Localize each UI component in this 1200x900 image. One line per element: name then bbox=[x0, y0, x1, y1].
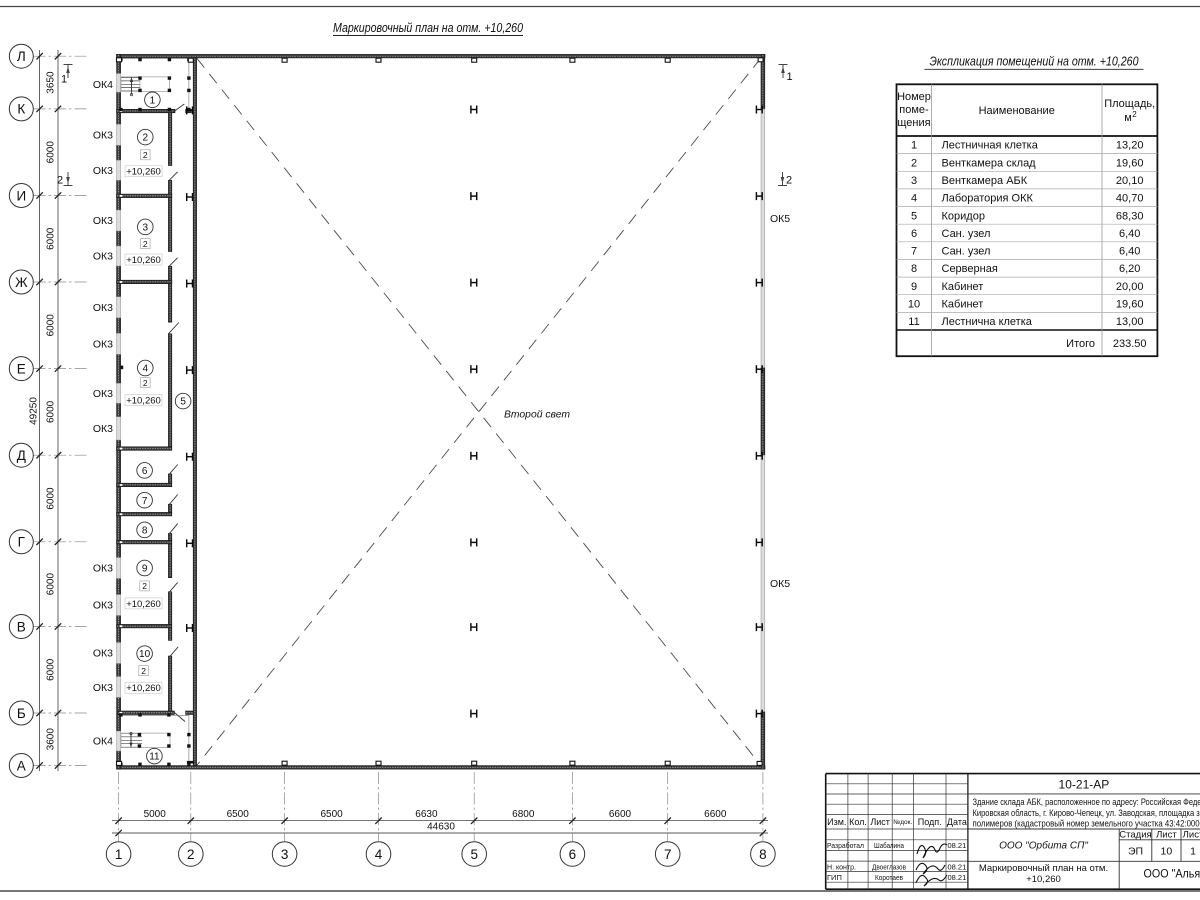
svg-text:2: 2 bbox=[187, 847, 195, 862]
svg-text:6800: 6800 bbox=[512, 809, 535, 820]
svg-text:4: 4 bbox=[375, 847, 383, 862]
svg-text:+10,260: +10,260 bbox=[126, 683, 161, 694]
svg-text:Б: Б bbox=[17, 706, 26, 721]
svg-text:+10,260: +10,260 bbox=[126, 395, 161, 406]
svg-text:2: 2 bbox=[143, 133, 149, 144]
svg-text:233.50: 233.50 bbox=[1113, 338, 1147, 350]
svg-text:08.21: 08.21 bbox=[948, 841, 967, 850]
svg-text:Дата: Дата bbox=[947, 817, 967, 827]
svg-text:10: 10 bbox=[139, 649, 151, 660]
svg-text:1: 1 bbox=[787, 71, 793, 83]
svg-text:Площадь,: Площадь, bbox=[1104, 98, 1155, 110]
svg-text:6,20: 6,20 bbox=[1119, 263, 1140, 275]
svg-text:1: 1 bbox=[911, 140, 917, 152]
svg-text:13,00: 13,00 bbox=[1116, 316, 1144, 328]
svg-text:ООО "Орбита СП": ООО "Орбита СП" bbox=[999, 840, 1088, 852]
svg-text:6000: 6000 bbox=[46, 314, 57, 337]
svg-text:Подп.: Подп. bbox=[918, 817, 942, 827]
svg-text:2: 2 bbox=[141, 666, 146, 676]
svg-text:ОК4: ОК4 bbox=[93, 79, 113, 91]
svg-text:Лист: Лист bbox=[1183, 830, 1200, 841]
svg-text:Стадия: Стадия bbox=[1119, 830, 1151, 841]
svg-text:08.21: 08.21 bbox=[948, 863, 967, 872]
svg-text:Лаборатория ОКК: Лаборатория ОКК bbox=[942, 193, 1034, 205]
svg-text:6000: 6000 bbox=[46, 487, 57, 510]
svg-text:3600: 3600 bbox=[46, 728, 57, 751]
svg-text:Здание склада АБК, расположенн: Здание склада АБК, расположенное по адре… bbox=[973, 797, 1200, 807]
svg-text:А: А bbox=[17, 758, 26, 773]
svg-text:4: 4 bbox=[911, 193, 917, 205]
svg-text:Маркировочный план на отм. +10: Маркировочный план на отм. +10,260 bbox=[333, 20, 524, 35]
svg-text:6000: 6000 bbox=[46, 141, 57, 164]
svg-text:В: В bbox=[17, 619, 26, 634]
svg-text:ООО "Альянс: ООО "Альянс bbox=[1144, 869, 1200, 881]
svg-text:ОК3: ОК3 bbox=[93, 563, 113, 575]
svg-text:+10,260: +10,260 bbox=[126, 255, 161, 266]
svg-text:10: 10 bbox=[908, 298, 920, 310]
svg-text:08.21: 08.21 bbox=[948, 873, 967, 882]
svg-text:ОК3: ОК3 bbox=[93, 165, 113, 177]
svg-text:2: 2 bbox=[143, 378, 148, 388]
svg-text:13,20: 13,20 bbox=[1116, 140, 1144, 152]
svg-text:поме-: поме- bbox=[899, 104, 929, 116]
svg-text:20,00: 20,00 bbox=[1116, 281, 1144, 293]
svg-text:Коридор: Коридор bbox=[942, 210, 985, 222]
svg-text:Лестничная клетка: Лестничная клетка bbox=[942, 140, 1039, 152]
svg-text:3: 3 bbox=[911, 175, 917, 187]
svg-text:Венткамера АБК: Венткамера АБК bbox=[942, 175, 1028, 187]
svg-text:ОК3: ОК3 bbox=[93, 682, 113, 694]
svg-text:К: К bbox=[17, 102, 25, 117]
svg-text:ОК3: ОК3 bbox=[93, 423, 113, 435]
svg-text:Серверная: Серверная bbox=[942, 263, 998, 275]
svg-text:3: 3 bbox=[143, 223, 149, 234]
svg-text:ГИП: ГИП bbox=[827, 873, 842, 882]
svg-text:+10,260: +10,260 bbox=[126, 599, 161, 610]
svg-text:Итого: Итого bbox=[1066, 338, 1095, 350]
svg-text:Маркировочный план на отм.: Маркировочный план на отм. bbox=[979, 863, 1108, 874]
svg-text:№док.: №док. bbox=[893, 819, 912, 826]
svg-text:ОК3: ОК3 bbox=[93, 388, 113, 400]
svg-text:ОК3: ОК3 bbox=[93, 648, 113, 660]
svg-text:11: 11 bbox=[908, 316, 919, 328]
svg-text:6000: 6000 bbox=[46, 573, 57, 596]
svg-text:Лист: Лист bbox=[1156, 830, 1177, 841]
svg-text:полимеров (кадастровый номер з: полимеров (кадастровый номер земельного … bbox=[973, 819, 1200, 829]
svg-text:ОК3: ОК3 bbox=[93, 302, 113, 314]
svg-text:Номер: Номер bbox=[897, 91, 931, 103]
svg-text:5: 5 bbox=[180, 397, 186, 408]
svg-text:6: 6 bbox=[911, 228, 917, 240]
svg-text:Д: Д bbox=[17, 448, 26, 463]
svg-text:Е: Е bbox=[17, 361, 26, 376]
svg-text:6: 6 bbox=[142, 466, 148, 477]
svg-text:ЭП: ЭП bbox=[1128, 846, 1143, 858]
svg-text:Лист: Лист bbox=[870, 817, 890, 827]
svg-text:19,60: 19,60 bbox=[1116, 298, 1144, 310]
svg-text:Второй свет: Второй свет bbox=[504, 409, 570, 421]
svg-text:4: 4 bbox=[143, 364, 149, 375]
svg-text:6,40: 6,40 bbox=[1119, 228, 1140, 240]
svg-text:ОК4: ОК4 bbox=[93, 735, 113, 747]
svg-text:ОК3: ОК3 bbox=[93, 251, 113, 263]
svg-text:1: 1 bbox=[1190, 846, 1196, 858]
svg-text:9: 9 bbox=[911, 281, 917, 293]
svg-text:Г: Г bbox=[18, 535, 26, 550]
svg-text:Кол.: Кол. bbox=[849, 817, 867, 827]
svg-text:6600: 6600 bbox=[609, 809, 632, 820]
svg-text:9: 9 bbox=[142, 564, 148, 575]
svg-text:ОК3: ОК3 bbox=[93, 600, 113, 612]
svg-text:6600: 6600 bbox=[704, 809, 727, 820]
svg-text:7: 7 bbox=[142, 496, 148, 507]
svg-text:Коротаев: Коротаев bbox=[875, 873, 903, 882]
svg-text:6: 6 bbox=[569, 847, 577, 862]
svg-text:5000: 5000 bbox=[144, 809, 167, 820]
svg-text:Ж: Ж bbox=[15, 275, 28, 290]
svg-text:ОК5: ОК5 bbox=[770, 213, 790, 225]
svg-text:6630: 6630 bbox=[415, 809, 438, 820]
svg-text:11: 11 bbox=[149, 752, 160, 763]
svg-text:2: 2 bbox=[1132, 110, 1137, 119]
svg-text:3650: 3650 bbox=[46, 71, 57, 94]
svg-text:Наименование: Наименование bbox=[979, 105, 1055, 117]
svg-text:10: 10 bbox=[1161, 846, 1173, 858]
svg-text:19,60: 19,60 bbox=[1116, 157, 1144, 169]
svg-text:Кабинет: Кабинет bbox=[942, 298, 984, 310]
svg-text:6500: 6500 bbox=[227, 809, 250, 820]
svg-text:3: 3 bbox=[281, 847, 289, 862]
svg-text:10-21-АР: 10-21-АР bbox=[1059, 778, 1110, 792]
svg-text:68,30: 68,30 bbox=[1116, 210, 1144, 222]
svg-text:ОК3: ОК3 bbox=[93, 130, 113, 142]
svg-text:7: 7 bbox=[664, 847, 672, 862]
svg-text:8: 8 bbox=[759, 847, 767, 862]
svg-text:2: 2 bbox=[786, 175, 792, 187]
svg-text:Шабалина: Шабалина bbox=[874, 841, 905, 850]
svg-text:Лестнична клетка: Лестнична клетка bbox=[942, 316, 1033, 328]
svg-text:49250: 49250 bbox=[29, 397, 40, 425]
svg-text:6,40: 6,40 bbox=[1119, 246, 1140, 258]
svg-text:Экспликация помещений на отм.: Экспликация помещений на отм. +10,260 bbox=[930, 54, 1140, 69]
svg-text:И: И bbox=[16, 188, 26, 203]
svg-text:Разработал: Разработал bbox=[827, 841, 864, 850]
svg-text:1: 1 bbox=[150, 95, 156, 106]
svg-text:20,10: 20,10 bbox=[1116, 175, 1144, 187]
svg-text:Н. контр.: Н. контр. bbox=[827, 863, 856, 872]
svg-text:5: 5 bbox=[470, 847, 478, 862]
svg-text:+10,260: +10,260 bbox=[126, 167, 161, 178]
svg-text:1: 1 bbox=[61, 74, 67, 86]
svg-text:Сан. узел: Сан. узел bbox=[942, 228, 991, 240]
svg-text:2: 2 bbox=[143, 239, 148, 249]
svg-text:Сан. узел: Сан. узел bbox=[942, 246, 991, 258]
svg-text:Венткамера склад: Венткамера склад bbox=[942, 157, 1037, 169]
svg-text:6000: 6000 bbox=[46, 658, 57, 681]
svg-text:2: 2 bbox=[57, 175, 63, 187]
svg-text:ОК3: ОК3 bbox=[93, 215, 113, 227]
svg-text:Изм.: Изм. bbox=[827, 817, 846, 827]
svg-text:44630: 44630 bbox=[427, 822, 455, 833]
svg-text:6000: 6000 bbox=[46, 400, 57, 423]
svg-text:2: 2 bbox=[142, 581, 147, 591]
svg-text:6000: 6000 bbox=[46, 227, 57, 250]
svg-text:м: м bbox=[1124, 112, 1132, 124]
svg-text:2: 2 bbox=[143, 150, 148, 160]
svg-text:1: 1 bbox=[115, 847, 123, 862]
svg-text:ОК3: ОК3 bbox=[93, 339, 113, 351]
svg-text:+10,260: +10,260 bbox=[1026, 874, 1061, 885]
svg-text:Л: Л bbox=[17, 49, 26, 64]
svg-text:6500: 6500 bbox=[320, 809, 343, 820]
svg-text:Кабинет: Кабинет bbox=[942, 281, 984, 293]
svg-text:40,70: 40,70 bbox=[1116, 193, 1144, 205]
svg-text:5: 5 bbox=[911, 210, 917, 222]
svg-text:ОК5: ОК5 bbox=[770, 578, 790, 590]
svg-text:8: 8 bbox=[911, 263, 917, 275]
svg-text:Кировская область, г. Кирово-Ч: Кировская область, г. Кирово-Чепецк, ул.… bbox=[973, 808, 1200, 818]
svg-text:2: 2 bbox=[911, 157, 917, 169]
svg-text:Двоеглазов: Двоеглазов bbox=[872, 863, 906, 872]
svg-text:щения: щения bbox=[897, 117, 930, 129]
svg-text:7: 7 bbox=[911, 246, 917, 258]
svg-text:8: 8 bbox=[142, 526, 148, 537]
